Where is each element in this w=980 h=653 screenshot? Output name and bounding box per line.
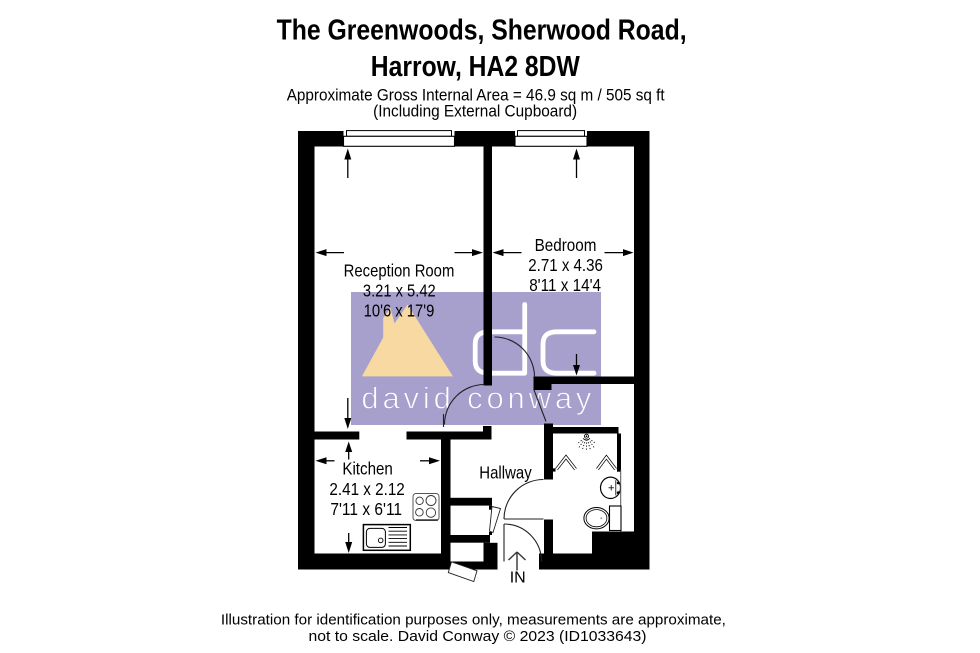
svg-text:Hallway: Hallway: [479, 462, 532, 482]
svg-text:Kitchen: Kitchen: [342, 459, 393, 479]
svg-text:8'11 x 14'4: 8'11 x 14'4: [529, 275, 601, 295]
svg-text:(Including External Cupboard): (Including External Cupboard): [373, 102, 577, 121]
svg-text:3.21 x 5.42: 3.21 x 5.42: [363, 280, 436, 300]
svg-text:The Greenwoods, Sherwood Road,: The Greenwoods, Sherwood Road,: [277, 15, 687, 47]
svg-text:Harrow, HA2 8DW: Harrow, HA2 8DW: [371, 51, 581, 83]
svg-text:2.71 x 4.36: 2.71 x 4.36: [528, 255, 603, 275]
svg-text:Illustration for identificatio: Illustration for identification purposes…: [221, 611, 726, 628]
svg-text:not to scale. David Conway © 2: not to scale. David Conway © 2023 (ID103…: [309, 628, 647, 645]
svg-text:IN: IN: [510, 570, 526, 587]
svg-text:Bedroom: Bedroom: [535, 235, 597, 255]
svg-text:10'6 x 17'9: 10'6 x 17'9: [364, 300, 435, 320]
svg-text:2.41 x 2.12: 2.41 x 2.12: [329, 479, 404, 499]
svg-text:7'11 x 6'11: 7'11 x 6'11: [330, 499, 402, 519]
svg-text:Reception Room: Reception Room: [344, 260, 455, 280]
